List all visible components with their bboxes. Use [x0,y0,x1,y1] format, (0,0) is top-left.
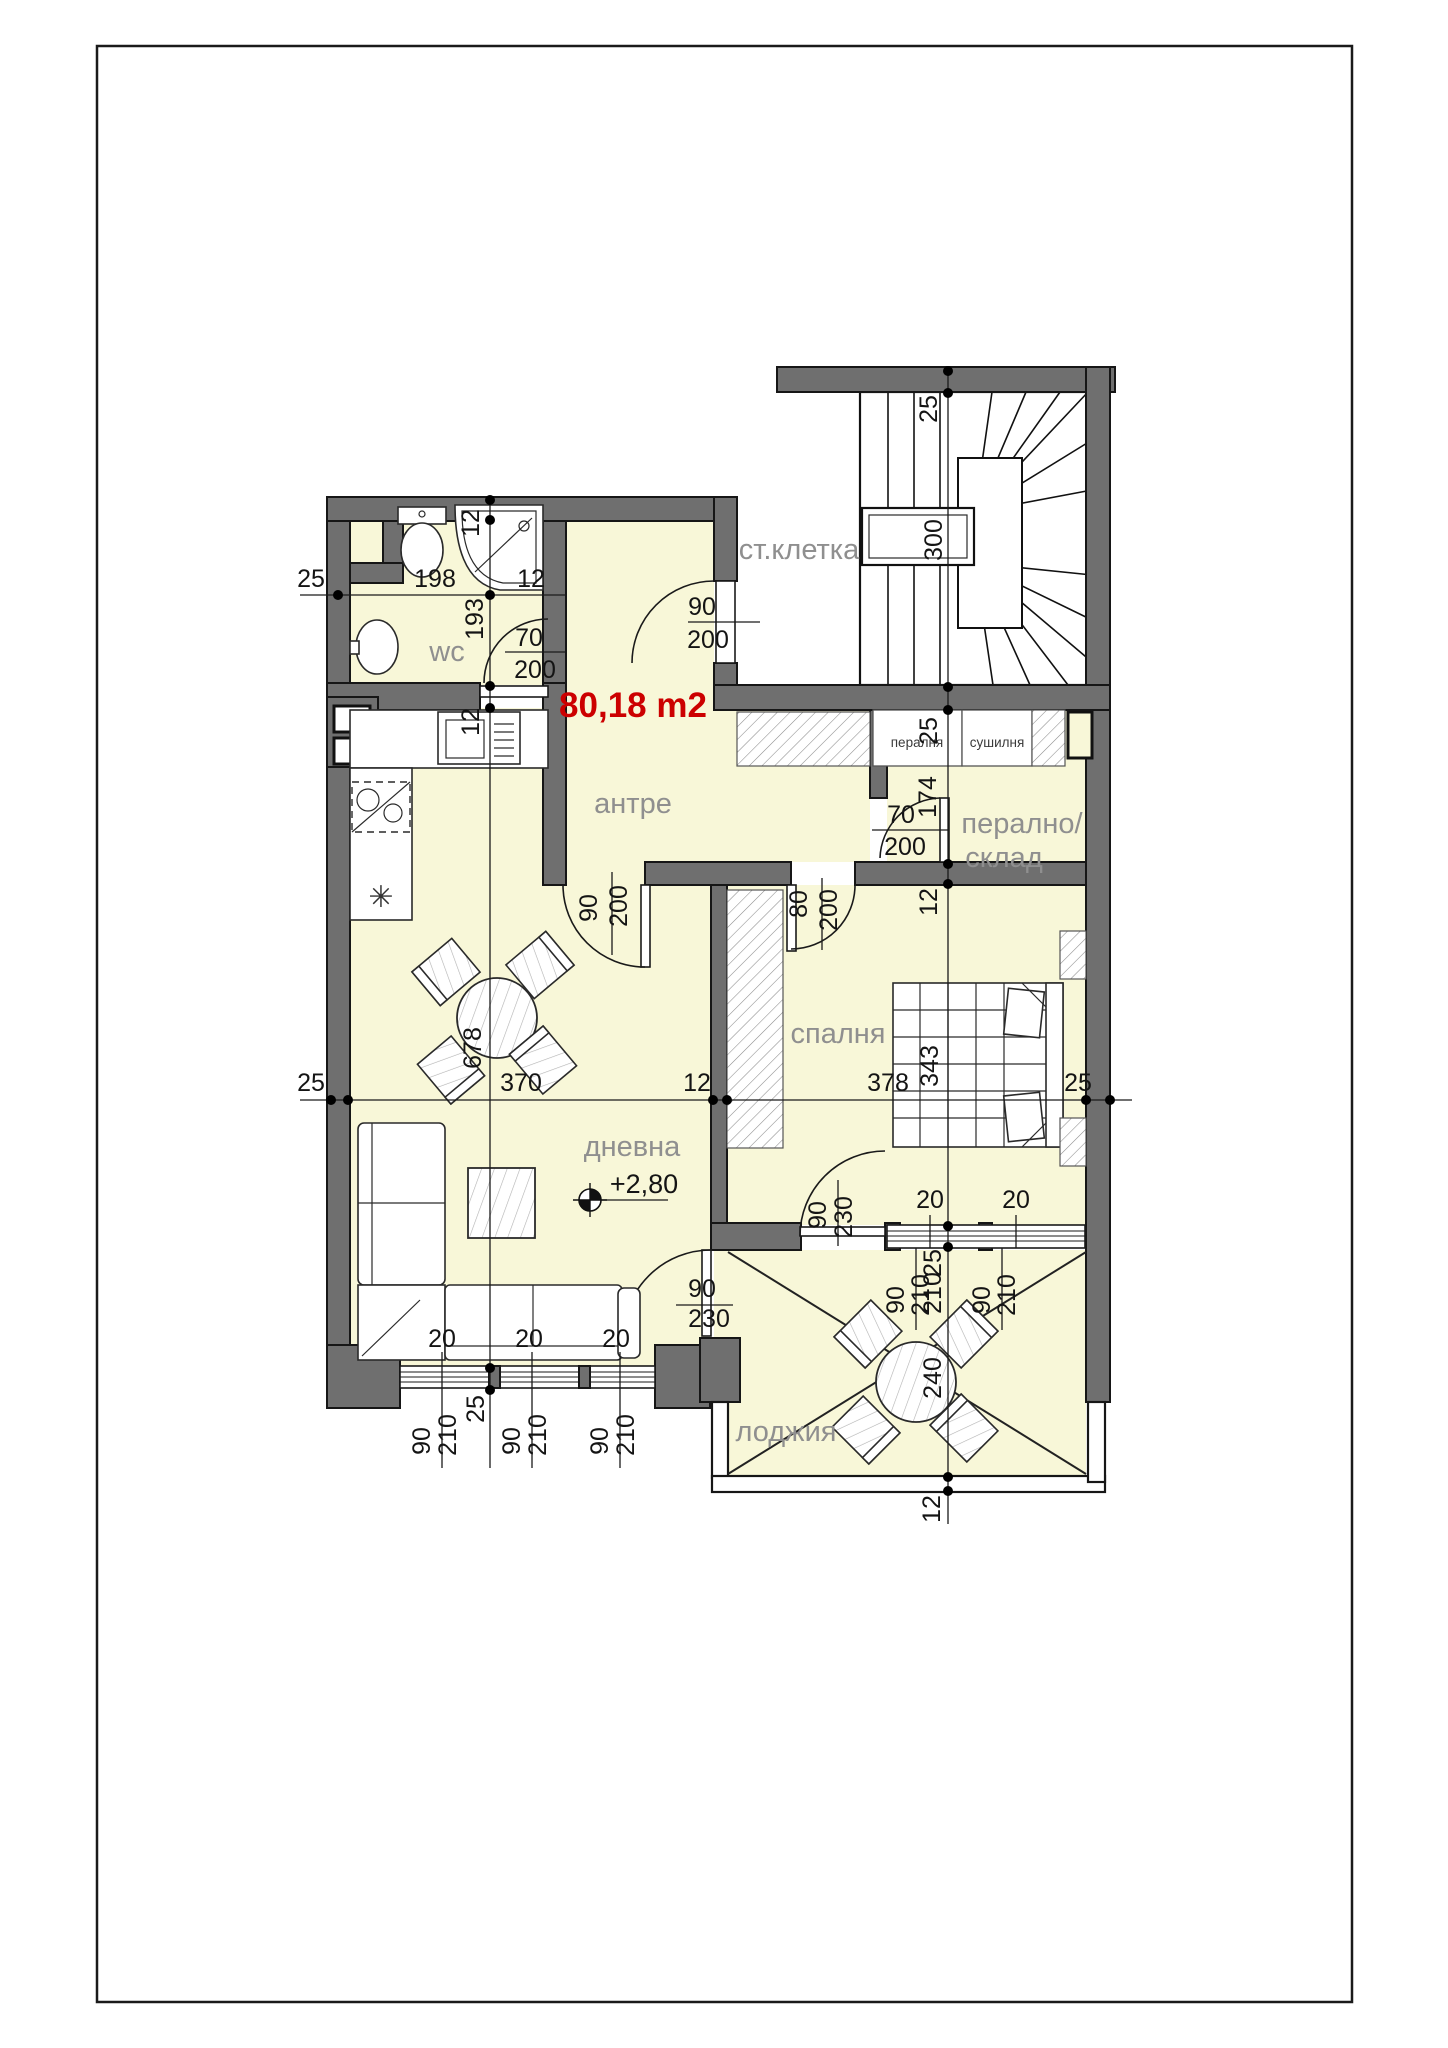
dim: 378 [867,1069,909,1097]
dim: 25 [297,1069,325,1097]
dim-door-loggia-width: 90 [688,1275,716,1303]
staircase [860,392,1092,685]
floor-plan-drawing: ст.клеткаwcантредневнаспалнялоджияпералн… [0,0,1448,2048]
dim-window: 210 [434,1414,462,1456]
wardrobe-hatch [737,712,870,766]
nightstand [1060,1118,1086,1166]
label-dryer: сушилня [970,735,1025,750]
dim-door-living-width: 90 [575,894,603,922]
wardrobe-hatch [1032,710,1065,766]
label-laundry-line2: склад [965,842,1043,874]
dim: 25 [915,395,943,423]
dim: 25 [297,565,325,593]
label-laundry-line1: перално/ [961,808,1083,840]
label-hallway: антре [594,788,672,820]
dim-stair-width: 300 [920,519,948,561]
dim-door-entry-width: 90 [688,593,716,621]
toilet-tank [398,507,446,524]
label-wc: wc [428,636,464,668]
dim: 174 [914,776,942,818]
bathroom-sink [356,620,398,674]
dim: 12 [457,708,485,736]
dim-door-bedroom-height: 200 [815,889,843,931]
dim-window: 210 [612,1414,640,1456]
dim: 12 [683,1069,711,1097]
faucet [350,641,359,654]
dim-window: 210 [993,1274,1021,1316]
dim: 12 [457,509,485,537]
pillow [1004,988,1045,1038]
dim-door-living-height: 200 [605,885,633,927]
stair-landing [862,508,974,565]
dim-window: 90 [882,1286,910,1314]
dim-door-loggia-height: 230 [688,1305,730,1333]
dim: 12 [915,888,943,916]
dim: 193 [461,598,489,640]
dim-window: 210 [907,1274,935,1316]
dim-door-wc-width: 70 [515,624,543,652]
wardrobe [727,890,783,1148]
dim-door-entry-height: 200 [687,626,729,654]
label-level-mark: +2,80 [610,1169,678,1199]
dim-window: 210 [524,1414,552,1456]
dim: 343 [916,1045,944,1087]
dim: 20 [515,1325,543,1353]
dim: 240 [919,1357,947,1399]
plan-page: ст.клеткаwcантредневнаспалнялоджияпералн… [0,0,1448,2048]
label-bedroom: спалня [791,1018,886,1050]
dim-door-bedroom-width: 80 [785,890,813,918]
dim: 25 [1064,1069,1092,1097]
label-staircase: ст.клетка [739,534,860,566]
dim-window: 90 [498,1427,526,1455]
dim: 25 [915,717,943,745]
fridge-symbol: ✳ [368,881,393,914]
dim-door-bedroom-loggia-width: 90 [804,1201,832,1229]
dim: 20 [916,1186,944,1214]
dim: 20 [1002,1186,1030,1214]
dim-door-bedroom-loggia-height: 230 [830,1196,858,1238]
dim-window: 90 [968,1286,996,1314]
dim: 12 [517,565,545,593]
dim: 370 [500,1069,542,1097]
dim-door-laundry-width: 70 [887,801,915,829]
dim-door-wc-height: 200 [514,656,556,684]
dim-window: 90 [408,1427,436,1455]
label-total-area: 80,18 m2 [559,686,707,725]
dim: 20 [428,1325,456,1353]
dim: 12 [918,1495,946,1523]
label-loggia: лоджия [736,1416,837,1448]
dim-window: 90 [586,1427,614,1455]
nightstand [1060,931,1086,979]
coffee-table [468,1168,535,1238]
living-door-leaf [641,885,650,967]
dim: 198 [414,565,456,593]
dim-door-laundry-height: 200 [884,833,926,861]
dim: 25 [462,1395,490,1423]
label-living-room: дневна [584,1131,681,1163]
dim-living-length: 678 [459,1027,487,1069]
dim: 20 [602,1325,630,1353]
